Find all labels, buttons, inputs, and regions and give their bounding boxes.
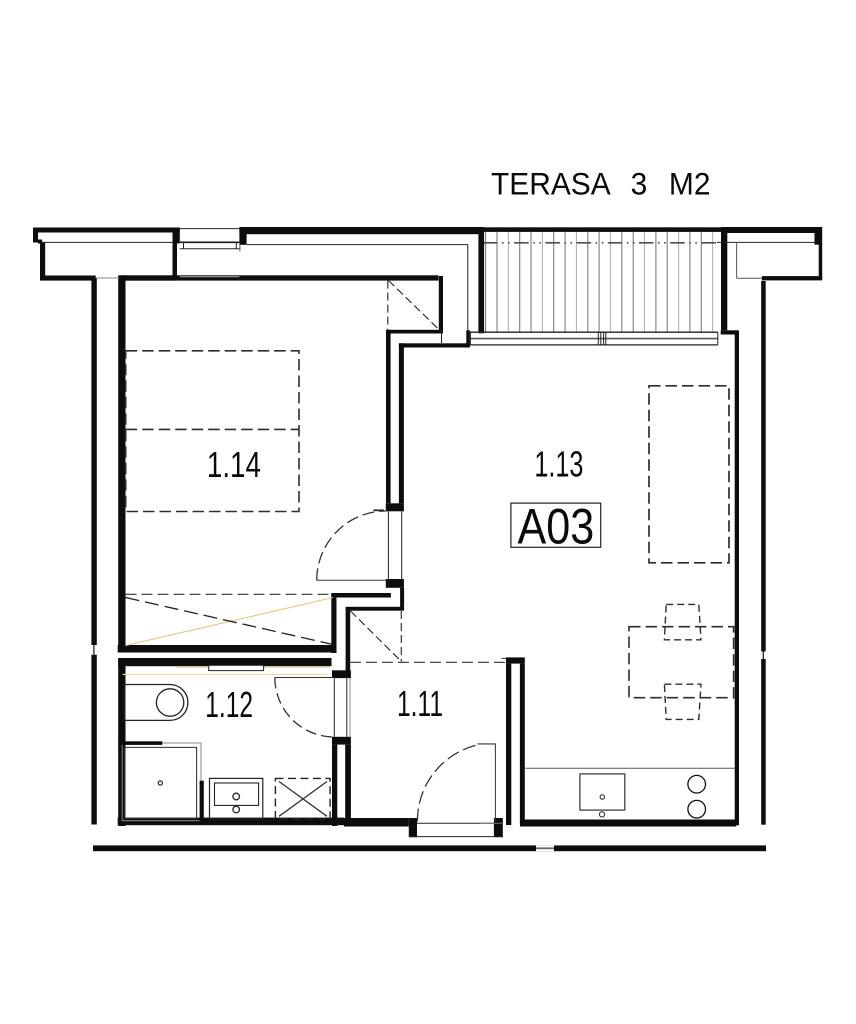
- svg-text:1.13: 1.13: [534, 444, 583, 485]
- svg-text:TERASA 3 M2: TERASA 3 M2: [491, 165, 711, 201]
- svg-text:A03: A03: [518, 498, 595, 554]
- svg-text:1.14: 1.14: [207, 444, 261, 485]
- svg-text:1.12: 1.12: [205, 684, 253, 725]
- svg-text:1.11: 1.11: [397, 683, 443, 724]
